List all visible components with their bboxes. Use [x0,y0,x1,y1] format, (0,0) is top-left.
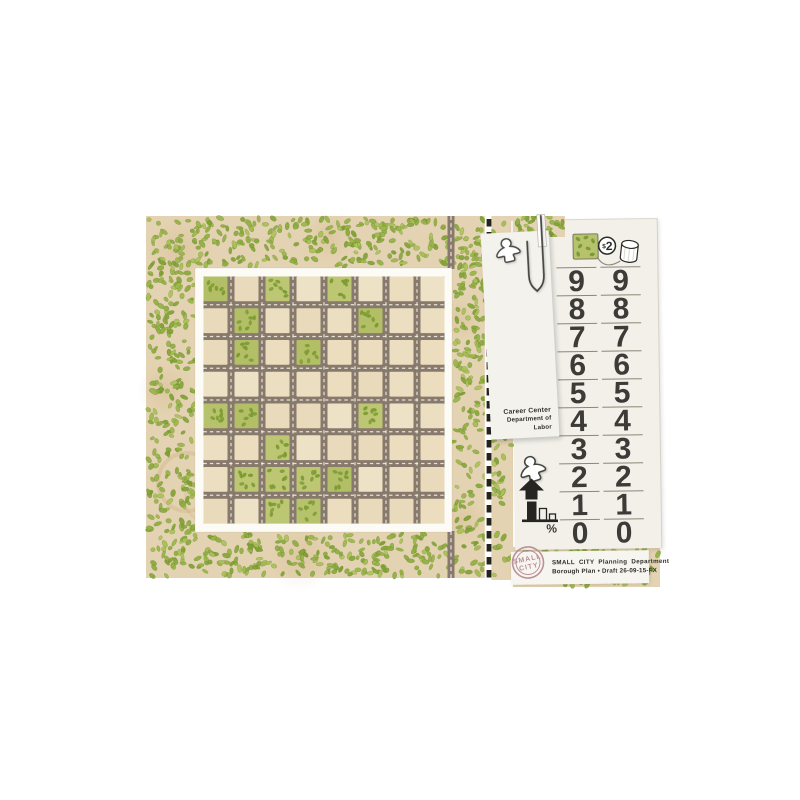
park-cell-r6c3[interactable] [297,467,321,492]
lot-cell-r4c3[interactable] [297,404,321,429]
lot-cell-r0c6[interactable] [390,277,414,302]
bar-chart-icon [522,502,558,523]
lot-cell-r1c0[interactable] [204,308,228,333]
lot-cell-r6c6[interactable] [390,467,414,492]
lot-cell-r1c7[interactable] [421,308,445,333]
score-left-5[interactable]: 5 [558,379,598,408]
lot-cell-r6c0[interactable] [204,467,228,492]
lot-cell-r3c6[interactable] [390,372,414,397]
lot-cell-r5c3[interactable] [297,435,321,460]
lot-cell-r2c6[interactable] [390,340,414,365]
meeple-icon [493,236,522,264]
lot-cell-r7c4[interactable] [328,499,352,524]
price-badge: $ 2 [599,237,616,254]
lot-cell-r7c7[interactable] [421,499,445,524]
lot-cell-r7c6[interactable] [390,499,414,524]
lot-cell-r3c0[interactable] [204,372,228,397]
game-board-svg [0,0,800,800]
park-cell-r4c5[interactable] [359,404,383,429]
small-city-stamp: SMALL CITY [508,543,550,585]
lot-cell-r6c5[interactable] [359,467,383,492]
paperclip-icon [526,215,549,292]
card-title-block: Career Center Department of Labor [490,406,552,435]
score-right-3[interactable]: 3 [603,434,643,463]
lot-cell-r3c2[interactable] [266,372,290,397]
score-left-4[interactable]: 4 [558,407,598,436]
career-center-card[interactable]: Career Center Department of Labor [481,230,560,439]
title-strip-text: SMALL CITY Planning Department Borough P… [552,557,670,576]
lot-cell-r2c2[interactable] [266,340,290,365]
lot-cell-r0c1[interactable] [235,277,259,302]
city-grid [195,268,452,532]
lot-cell-r1c4[interactable] [328,308,352,333]
score-right-6[interactable]: 6 [602,350,642,379]
score-right-5[interactable]: 5 [602,378,642,407]
lot-cell-r1c2[interactable] [266,308,290,333]
score-left-6[interactable]: 6 [558,351,598,380]
lot-cell-r7c0[interactable] [204,499,228,524]
score-left-7[interactable]: 7 [557,323,597,352]
lot-cell-r2c7[interactable] [421,340,445,365]
score-column-right: 9876543210 [600,266,644,547]
lot-cell-r3c3[interactable] [297,372,321,397]
lot-cell-r1c6[interactable] [390,308,414,333]
card-subtitle: Department of Labor [490,414,552,434]
lot-cell-r5c5[interactable] [359,435,383,460]
score-right-8[interactable]: 8 [601,294,641,323]
employment-growth-icon [508,448,566,544]
park-cell-r4c1[interactable] [235,404,259,429]
score-right-4[interactable]: 4 [602,406,642,435]
barrel-token-icon [620,240,639,263]
lot-cell-r4c4[interactable] [328,404,352,429]
lot-cell-r5c4[interactable] [328,435,352,460]
lot-cell-r2c4[interactable] [328,340,352,365]
lot-cell-r0c7[interactable] [421,277,445,302]
lot-cell-r3c5[interactable] [359,372,383,397]
score-right-2[interactable]: 2 [603,462,643,491]
score-left-9[interactable]: 9 [556,267,596,296]
lot-cell-r3c4[interactable] [328,372,352,397]
lot-cell-r4c6[interactable] [390,404,414,429]
score-right-0[interactable]: 0 [604,518,644,547]
lot-cell-r7c5[interactable] [359,499,383,524]
score-right-9[interactable]: 9 [600,266,640,295]
lot-cell-r2c5[interactable] [359,340,383,365]
score-right-1[interactable]: 1 [603,490,643,519]
lot-cell-r3c7[interactable] [421,372,445,397]
lot-cell-r5c0[interactable] [204,435,228,460]
title-strip-line2: Borough Plan • Draft 26-09-15-FX [552,566,669,576]
card-decorations [480,210,555,304]
lot-cell-r0c3[interactable] [297,277,321,302]
lot-cell-r3c1[interactable] [235,372,259,397]
lot-cell-r4c2[interactable] [266,404,290,429]
lot-cell-r0c5[interactable] [359,277,383,302]
price-value: 2 [606,239,613,253]
small-city-board-photo: $ 2 9876543210 9876543210 % [0,0,800,800]
lot-cell-r7c1[interactable] [235,499,259,524]
lot-cell-r5c1[interactable] [235,435,259,460]
score-left-8[interactable]: 8 [557,295,597,324]
lot-cell-r4c7[interactable] [421,404,445,429]
lot-cell-r5c6[interactable] [390,435,414,460]
lot-cell-r5c7[interactable] [421,435,445,460]
lot-cell-r6c7[interactable] [421,467,445,492]
park-cell-r4c0[interactable] [204,404,228,429]
growth-arrow-icon [519,479,544,500]
lot-cell-r2c0[interactable] [204,340,228,365]
score-right-7[interactable]: 7 [601,322,641,351]
lot-cell-r1c3[interactable] [297,308,321,333]
